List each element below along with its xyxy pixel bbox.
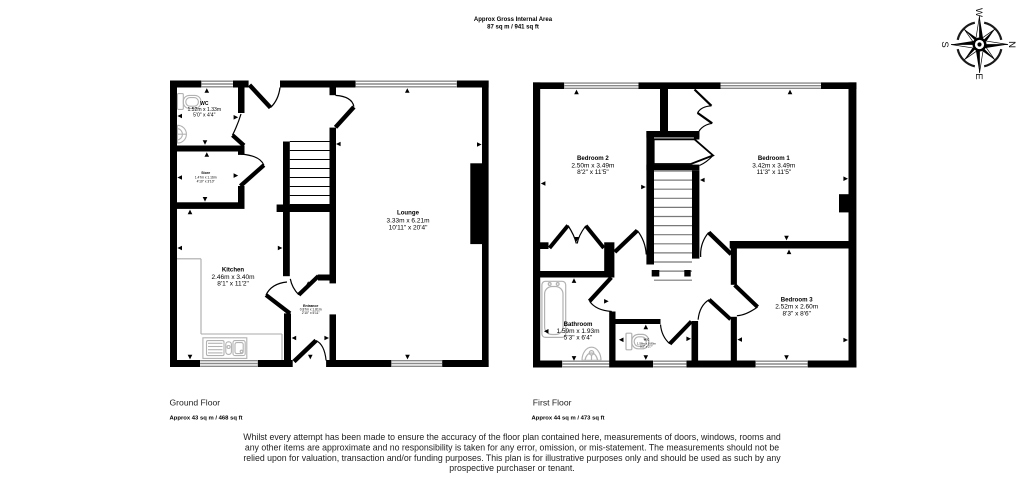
svg-text:Approx 43 sq m / 468 sq ft: Approx 43 sq m / 468 sq ft: [170, 415, 243, 421]
svg-text:Approx 44 sq m / 473 sq ft: Approx 44 sq m / 473 sq ft: [532, 415, 605, 421]
svg-text:10'11" x 20'4": 10'11" x 20'4": [389, 224, 428, 231]
svg-text:2'10" x 5'11": 2'10" x 5'11": [302, 311, 321, 315]
svg-text:4'10" x 3'10": 4'10" x 3'10": [197, 179, 216, 183]
svg-text:prospective purchaser or tenan: prospective purchaser or tenant.: [449, 463, 575, 473]
svg-text:E: E: [973, 73, 984, 79]
svg-text:Kitchen: Kitchen: [222, 266, 245, 273]
svg-text:3.33m x 6.21m: 3.33m x 6.21m: [387, 217, 430, 224]
svg-text:Bedroom 2: Bedroom 2: [577, 155, 609, 162]
svg-text:WC: WC: [200, 101, 209, 107]
svg-text:Lounge: Lounge: [397, 210, 420, 217]
svg-text:any other items are approximat: any other items are approximate and no r…: [245, 443, 779, 453]
svg-text:5'0" x 4'4": 5'0" x 4'4": [193, 112, 215, 118]
svg-text:relied upon for valuation, tra: relied upon for valuation, transaction a…: [243, 453, 781, 463]
svg-text:Bathroom: Bathroom: [564, 321, 593, 328]
svg-text:N: N: [1006, 41, 1017, 48]
svg-text:Bedroom 1: Bedroom 1: [758, 155, 790, 162]
svg-text:8'2" x 11'5": 8'2" x 11'5": [577, 169, 609, 176]
svg-text:8'3" x 8'6": 8'3" x 8'6": [782, 310, 811, 317]
svg-text:Whilst every attempt has been: Whilst every attempt has been made to en…: [243, 432, 781, 442]
svg-text:Approx Gross Internal Area: Approx Gross Internal Area: [474, 17, 553, 23]
svg-text:S: S: [939, 41, 950, 47]
svg-text:First Floor: First Floor: [533, 397, 572, 407]
svg-text:W: W: [973, 8, 984, 17]
svg-text:5'3" x 6'4": 5'3" x 6'4": [564, 335, 593, 342]
svg-text:11'3" x 11'5": 11'3" x 11'5": [756, 169, 791, 176]
svg-text:Bedroom 3: Bedroom 3: [781, 297, 813, 304]
svg-text:Store: Store: [201, 171, 210, 175]
svg-text:87 sq m / 941 sq ft: 87 sq m / 941 sq ft: [487, 25, 539, 31]
svg-text:8'1" x 11'2": 8'1" x 11'2": [217, 280, 249, 287]
svg-text:5'2" x 2'7": 5'2" x 2'7": [640, 344, 653, 348]
svg-text:Ground Floor: Ground Floor: [170, 397, 221, 407]
